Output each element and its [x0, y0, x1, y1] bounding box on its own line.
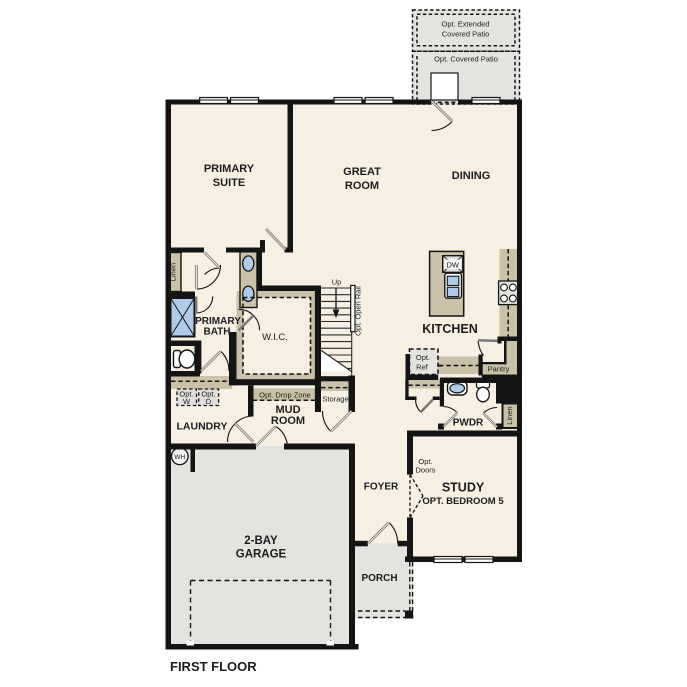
svg-text:PRIMARY: PRIMARY: [195, 316, 241, 327]
svg-text:ROOM: ROOM: [271, 415, 305, 427]
svg-text:D: D: [206, 397, 212, 406]
svg-text:W.I.C.: W.I.C.: [262, 332, 288, 343]
svg-text:Storage: Storage: [322, 395, 348, 404]
svg-text:BATH: BATH: [203, 327, 230, 338]
svg-text:WH: WH: [174, 454, 185, 461]
svg-text:PWDR: PWDR: [453, 418, 484, 429]
svg-text:Doors: Doors: [415, 466, 435, 475]
svg-text:Opt. Extended: Opt. Extended: [442, 20, 490, 29]
svg-text:LAUNDRY: LAUNDRY: [177, 421, 228, 433]
svg-text:W: W: [183, 397, 191, 406]
svg-text:2-BAY: 2-BAY: [244, 535, 278, 547]
svg-text:Opt.: Opt.: [416, 353, 430, 362]
svg-text:DW: DW: [446, 261, 459, 270]
svg-text:Pantry: Pantry: [488, 365, 510, 374]
svg-text:Opt. Drop Zone: Opt. Drop Zone: [259, 391, 311, 400]
svg-text:Up: Up: [332, 278, 342, 287]
svg-text:Linen: Linen: [505, 406, 514, 424]
svg-text:OPT. BEDROOM 5: OPT. BEDROOM 5: [422, 496, 504, 507]
svg-text:GARAGE: GARAGE: [236, 549, 287, 561]
svg-text:ROOM: ROOM: [345, 180, 379, 192]
svg-text:FOYER: FOYER: [364, 482, 399, 493]
svg-text:SUITE: SUITE: [213, 177, 245, 189]
svg-text:Opt. Covered Patio: Opt. Covered Patio: [434, 55, 498, 64]
svg-text:Linen: Linen: [169, 263, 178, 281]
svg-text:DINING: DINING: [452, 170, 491, 182]
svg-text:PRIMARY: PRIMARY: [204, 163, 255, 175]
svg-text:PORCH: PORCH: [361, 573, 397, 584]
svg-text:GREAT: GREAT: [343, 166, 381, 178]
svg-text:Ref: Ref: [416, 363, 429, 372]
svg-text:Opt. Open Rail: Opt. Open Rail: [354, 286, 363, 336]
svg-text:FIRST FLOOR: FIRST FLOOR: [170, 659, 257, 674]
svg-text:KITCHEN: KITCHEN: [422, 322, 478, 336]
svg-text:Covered Patio: Covered Patio: [442, 30, 490, 39]
svg-text:STUDY: STUDY: [442, 481, 485, 495]
